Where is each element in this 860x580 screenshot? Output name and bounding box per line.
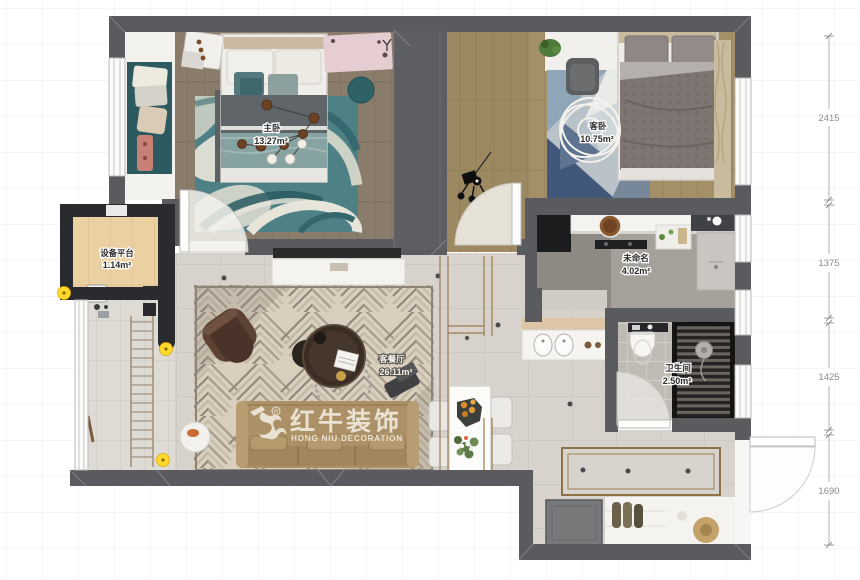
svg-text:R: R: [274, 410, 279, 416]
svg-text:13.27m²: 13.27m²: [254, 136, 288, 146]
svg-text:1.14m²: 1.14m²: [103, 260, 132, 270]
svg-text:卫生间: 卫生间: [665, 362, 691, 373]
svg-text:4.02m²: 4.02m²: [622, 266, 651, 276]
svg-text:设备平台: 设备平台: [100, 248, 134, 258]
svg-text:26.11m²: 26.11m²: [379, 367, 412, 377]
svg-text:HONG NIU DECORATION: HONG NIU DECORATION: [291, 434, 403, 443]
svg-text:1690: 1690: [818, 486, 839, 497]
svg-text:红牛装饰: 红牛装饰: [290, 407, 402, 436]
svg-text:2.50m²: 2.50m²: [663, 376, 692, 386]
svg-text:主卧: 主卧: [263, 122, 281, 133]
svg-text:1425: 1425: [818, 372, 839, 383]
svg-text:1375: 1375: [818, 258, 839, 269]
svg-text:10.75m²: 10.75m²: [580, 134, 614, 144]
svg-text:2415: 2415: [818, 113, 839, 124]
svg-text:客卧: 客卧: [588, 120, 607, 131]
svg-text:客餐厅: 客餐厅: [378, 353, 405, 364]
svg-text:未命名: 未命名: [622, 252, 649, 263]
